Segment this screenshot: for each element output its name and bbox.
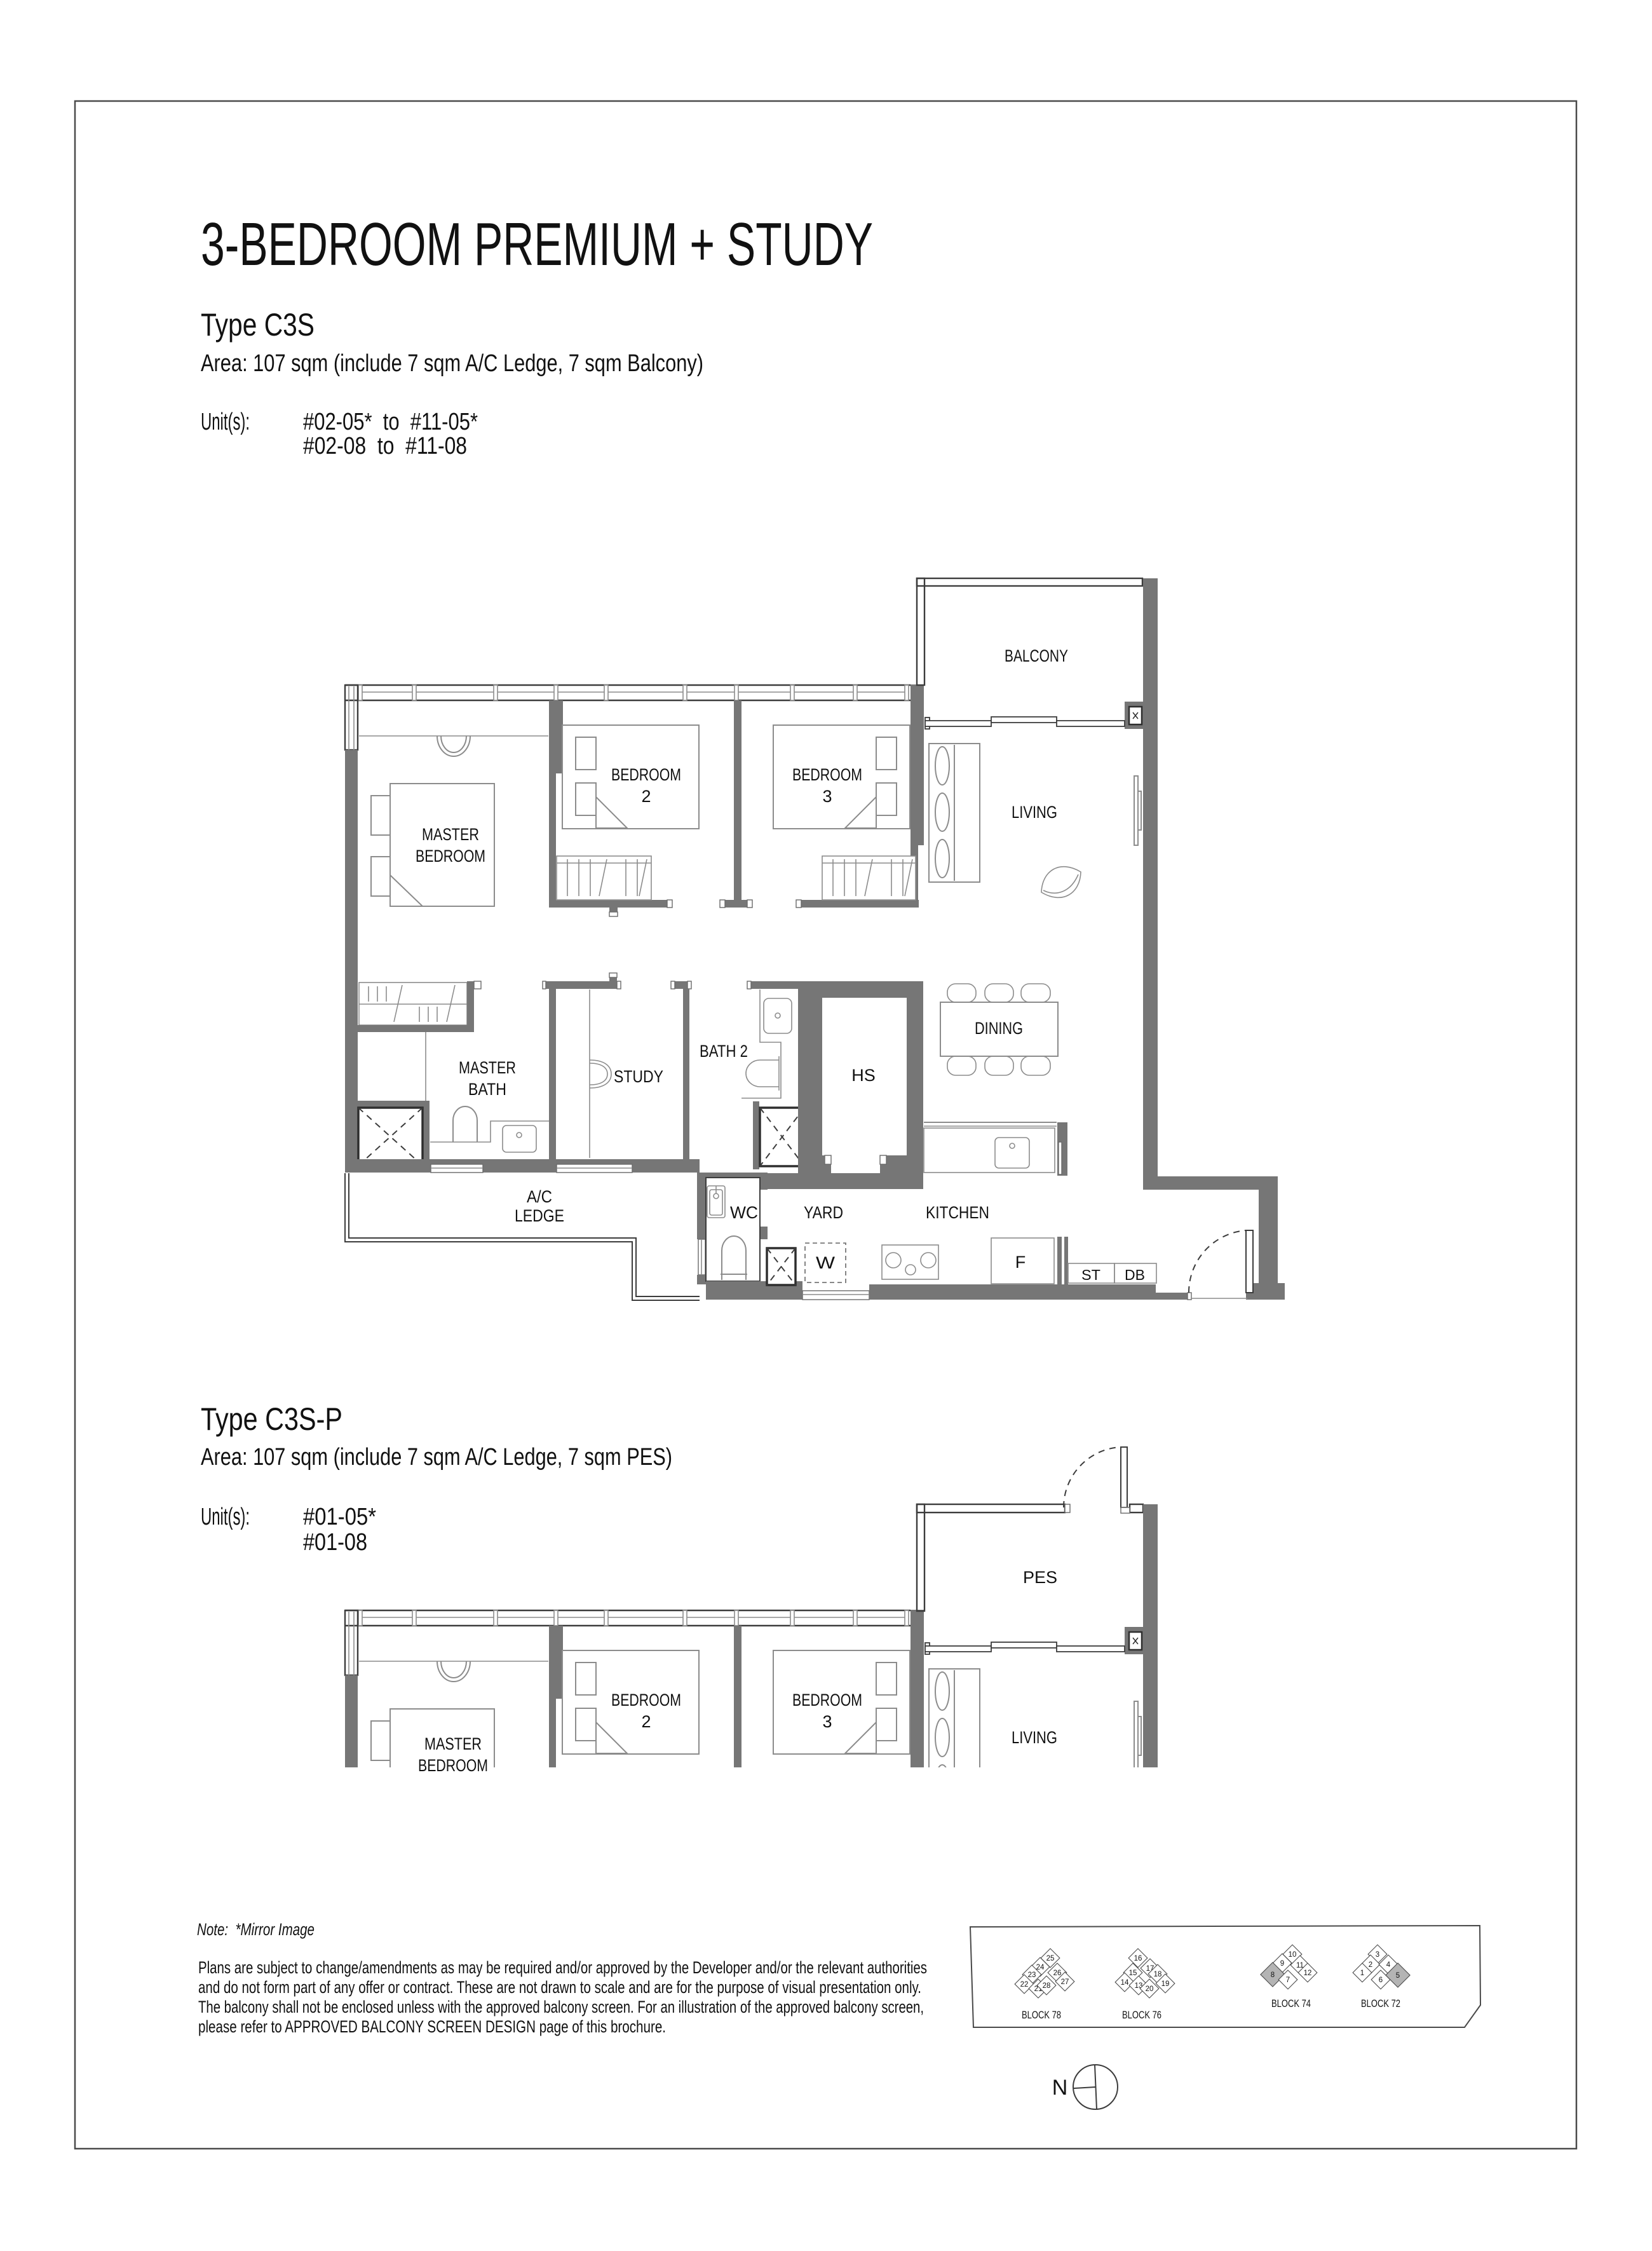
svg-text:2: 2 (1369, 1961, 1372, 1969)
svg-text:6: 6 (1379, 1976, 1383, 1984)
svg-text:19: 19 (1161, 1980, 1170, 1988)
svg-text:YARD: YARD (804, 1203, 843, 1222)
svg-text:BEDROOM: BEDROOM (418, 1756, 488, 1775)
svg-text:BEDROOM: BEDROOM (792, 765, 862, 784)
svg-text:BEDROOM: BEDROOM (416, 847, 485, 866)
svg-text:Type C3S: Type C3S (201, 307, 315, 343)
svg-text:LIVING: LIVING (1012, 803, 1057, 822)
svg-text:BLOCK 78: BLOCK 78 (1022, 2009, 1061, 2021)
svg-text:#01-05*: #01-05* (303, 1504, 376, 1530)
svg-text:22: 22 (1020, 1981, 1029, 1989)
svg-text:2: 2 (641, 1712, 651, 1731)
svg-text:14: 14 (1121, 1979, 1129, 1987)
svg-text:28: 28 (1043, 1982, 1051, 1990)
svg-text:8: 8 (1271, 1971, 1275, 1979)
svg-text:#01-08: #01-08 (303, 1529, 367, 1556)
svg-text:5: 5 (1396, 1972, 1400, 1980)
svg-text:18: 18 (1154, 1971, 1162, 1978)
svg-text:BEDROOM: BEDROOM (792, 1690, 862, 1710)
svg-text:DINING: DINING (975, 1019, 1023, 1038)
svg-text:3-BEDROOM PREMIUM + STUDY: 3-BEDROOM PREMIUM + STUDY (201, 210, 873, 278)
svg-text:3: 3 (1376, 1951, 1379, 1959)
svg-text:3: 3 (822, 787, 832, 806)
svg-text:BLOCK 76: BLOCK 76 (1122, 2009, 1161, 2021)
svg-text:Unit(s):: Unit(s): (201, 1504, 250, 1530)
svg-text:2: 2 (641, 787, 651, 806)
svg-text:1: 1 (1360, 1969, 1364, 1977)
svg-text:HS: HS (851, 1066, 876, 1085)
svg-text:9: 9 (1280, 1960, 1284, 1968)
svg-text:KITCHEN: KITCHEN (926, 1203, 989, 1222)
svg-text:LEDGE: LEDGE (515, 1206, 564, 1225)
svg-text:STUDY: STUDY (614, 1067, 663, 1086)
svg-text:4: 4 (1386, 1961, 1391, 1969)
svg-text:15: 15 (1129, 1969, 1137, 1977)
svg-text:20: 20 (1146, 1985, 1154, 1993)
svg-text:7: 7 (1286, 1976, 1290, 1984)
svg-text:Note: *Mirror Image: Note: *Mirror Image (197, 1920, 315, 1939)
svg-text:Plans are subject to change/am: Plans are subject to change/amendments a… (198, 1958, 927, 1977)
svg-text:MASTER: MASTER (459, 1058, 516, 1077)
svg-text:23: 23 (1028, 1971, 1036, 1979)
svg-text:10: 10 (1289, 1951, 1297, 1959)
svg-text:MASTER: MASTER (424, 1734, 482, 1753)
svg-text:12: 12 (1304, 1969, 1312, 1977)
svg-text:BATH 2: BATH 2 (700, 1042, 748, 1061)
svg-text:27: 27 (1061, 1978, 1069, 1986)
svg-text:ST: ST (1081, 1267, 1100, 1283)
svg-text:and do not form part of any of: and do not form part of any offer or con… (198, 1978, 921, 1997)
svg-text:Area: 107 sqm (include 7 sqm A: Area: 107 sqm (include 7 sqm A/C Ledge, … (201, 1444, 672, 1471)
svg-text:#02-05* to #11-05*: #02-05* to #11-05* (303, 409, 478, 435)
svg-text:please refer to APPROVED BALCO: please refer to APPROVED BALCONY SCREEN … (198, 2017, 666, 2036)
svg-text:Type C3S-P: Type C3S-P (201, 1401, 342, 1437)
svg-text:3: 3 (822, 1712, 832, 1731)
svg-text:BEDROOM: BEDROOM (611, 1690, 681, 1710)
svg-text:#02-08 to #11-08: #02-08 to #11-08 (303, 433, 467, 459)
svg-text:BLOCK 74: BLOCK 74 (1271, 1997, 1311, 2010)
svg-text:Unit(s):: Unit(s): (201, 409, 250, 435)
svg-text:BATH: BATH (468, 1080, 506, 1099)
svg-text:A/C: A/C (527, 1187, 552, 1206)
svg-text:N: N (1052, 2076, 1068, 2100)
svg-text:BEDROOM: BEDROOM (611, 765, 681, 784)
svg-text:25: 25 (1046, 1955, 1055, 1962)
svg-text:The balcony shall not be enclo: The balcony shall not be enclosed unless… (198, 1997, 924, 2016)
svg-text:F: F (1015, 1253, 1026, 1272)
svg-text:BALCONY: BALCONY (1005, 646, 1068, 665)
svg-text:16: 16 (1134, 1955, 1142, 1962)
svg-text:PES: PES (1023, 1568, 1057, 1587)
svg-text:LIVING: LIVING (1012, 1728, 1057, 1747)
svg-text:WC: WC (730, 1203, 758, 1222)
svg-text:MASTER: MASTER (422, 825, 479, 844)
svg-text:Area: 107 sqm (include 7 sqm A: Area: 107 sqm (include 7 sqm A/C Ledge, … (201, 350, 703, 377)
svg-text:W: W (816, 1253, 836, 1272)
svg-text:BLOCK 72: BLOCK 72 (1361, 1997, 1400, 2010)
svg-text:26: 26 (1053, 1969, 1062, 1977)
svg-text:DB: DB (1125, 1267, 1145, 1283)
